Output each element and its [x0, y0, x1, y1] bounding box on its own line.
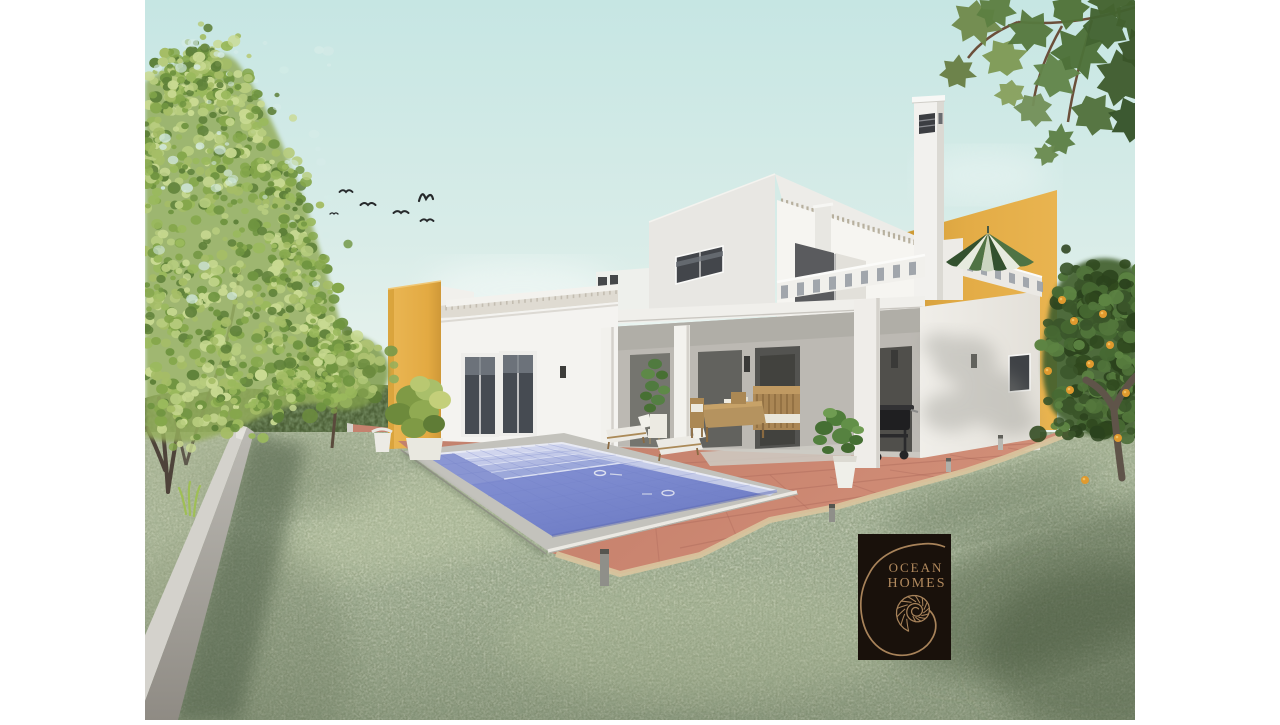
- svg-text:HOMES: HOMES: [887, 576, 946, 591]
- svg-text:OCEAN: OCEAN: [889, 560, 944, 575]
